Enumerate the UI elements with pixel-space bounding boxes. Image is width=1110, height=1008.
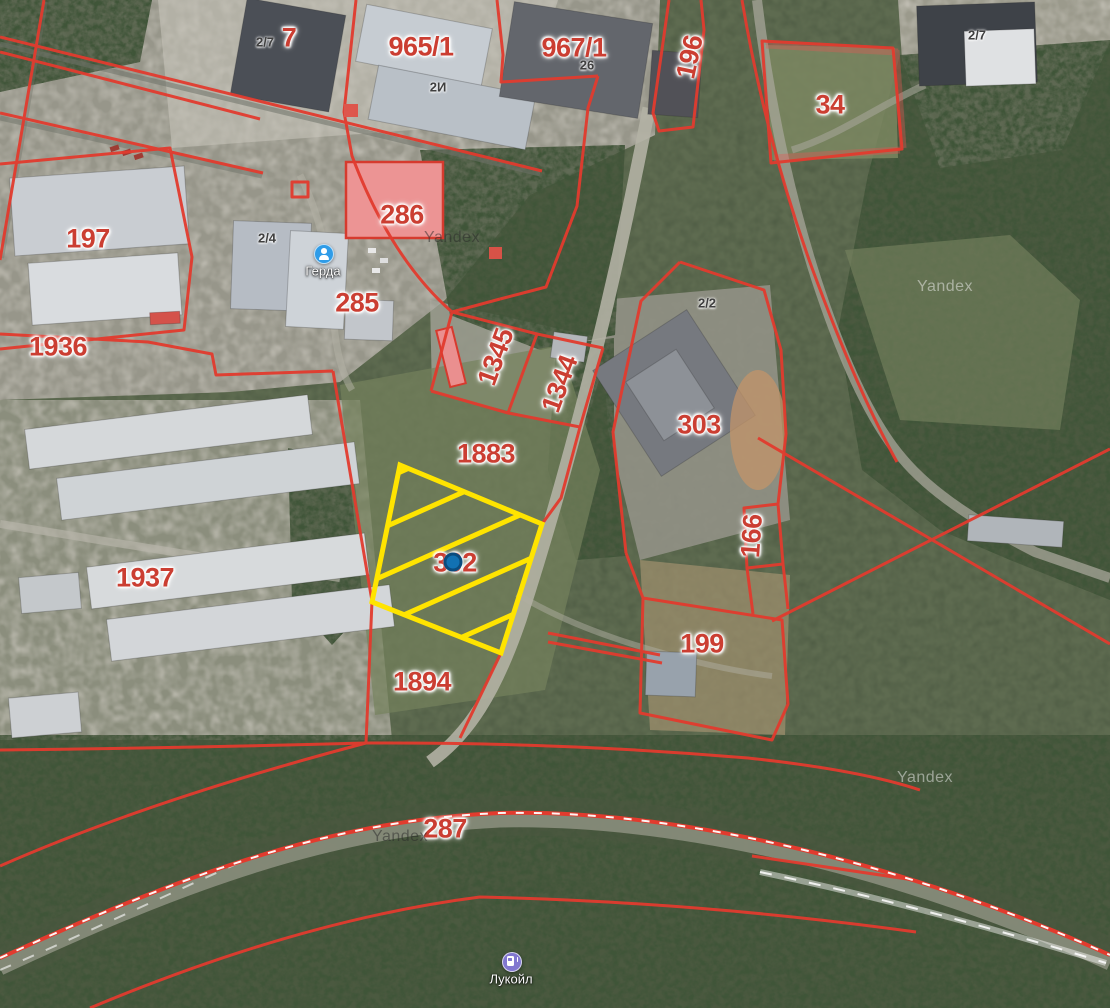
poi-label: Лукойл <box>489 972 532 987</box>
fuel-station-icon[interactable] <box>502 952 522 972</box>
company-person-icon[interactable] <box>314 244 334 264</box>
poi-label: Герда <box>305 264 340 279</box>
map-overlay-layer: ГердаЛукойл <box>0 0 1110 1008</box>
selected-point-marker[interactable] <box>444 553 463 572</box>
map-canvas[interactable]: 7965/1967/119634197286285193613451344303… <box>0 0 1110 1008</box>
